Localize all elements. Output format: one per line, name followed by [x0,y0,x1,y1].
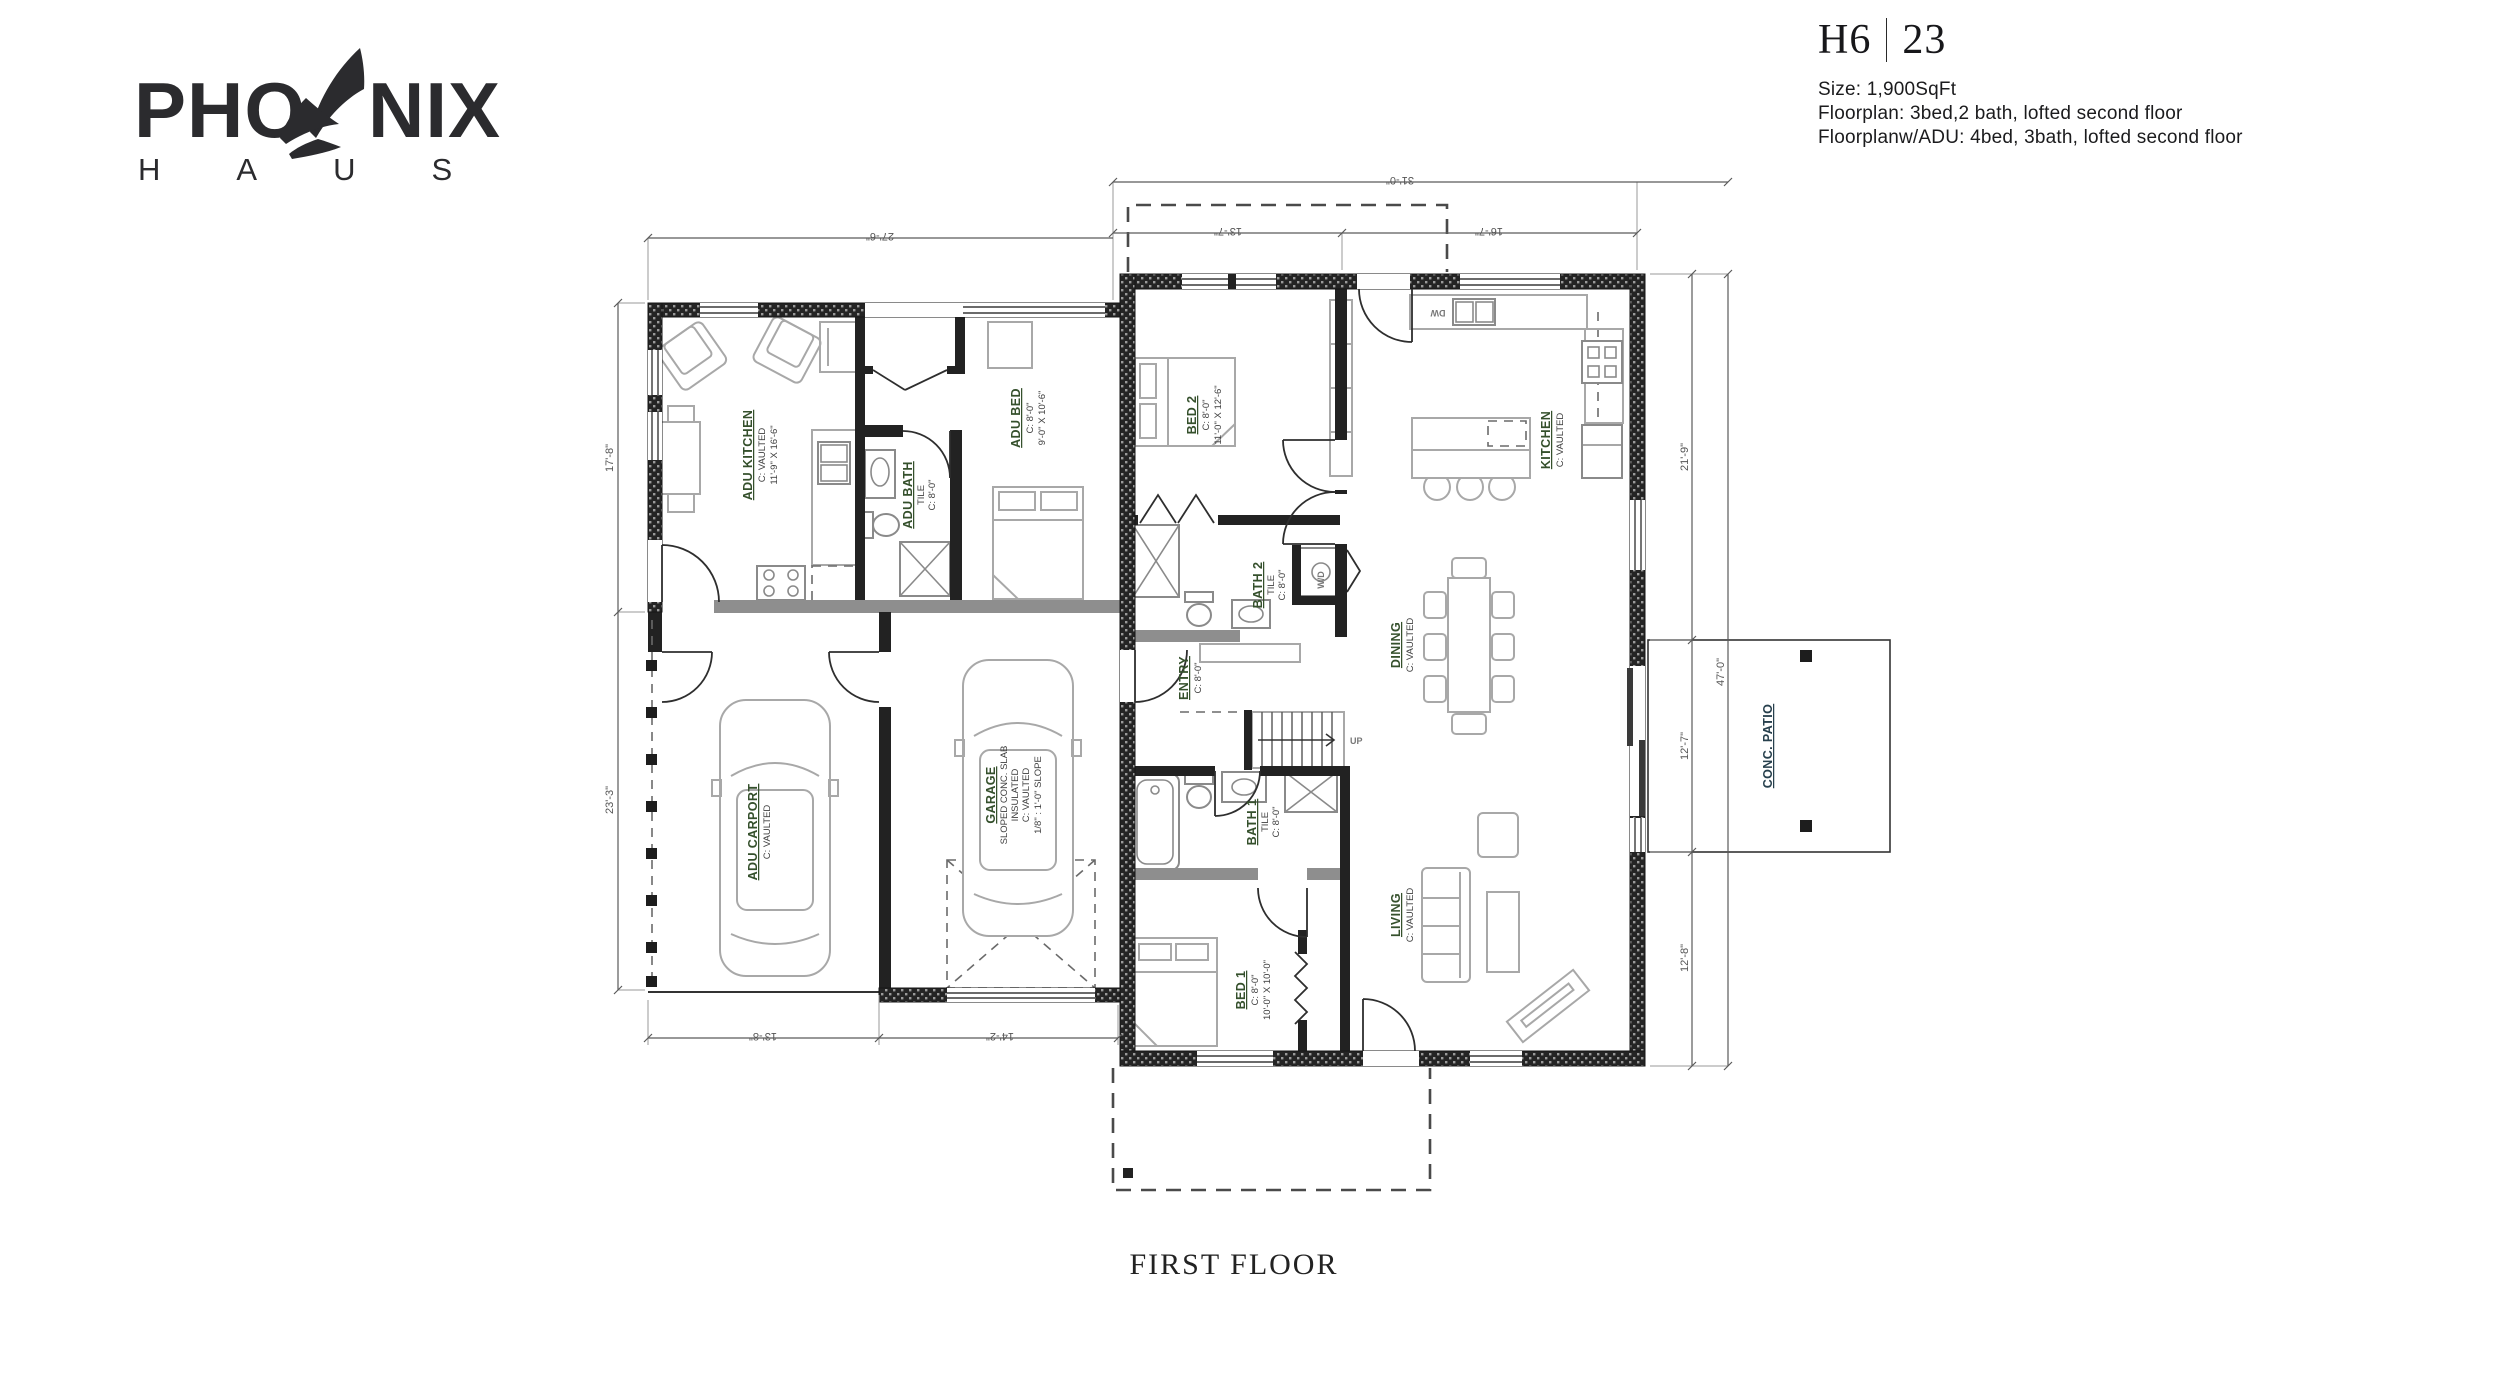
range-icon [757,566,805,600]
kitchen-sink-icon [818,442,850,484]
sliding-door-panel [1627,668,1633,746]
dim-left-adu: 17'-8" [604,444,616,472]
dim-right-total: 47'-0" [1715,658,1727,686]
svg-text:BATH 2: BATH 2 [1251,562,1265,609]
svg-text:10'-0" X 10'-0": 10'-0" X 10'-0" [1262,960,1273,1020]
dim-top-kitchen: 16'-7" [1475,225,1503,237]
label-wd: W/D [1316,571,1326,589]
rear-porch-roofline [1113,1068,1430,1190]
svg-text:C: VAULTED: C: VAULTED [1405,888,1416,943]
svg-text:C: 8'-0": C: 8'-0" [1193,662,1204,693]
svg-text:ADU CARPORT: ADU CARPORT [746,784,760,881]
dim-bottom-carport: 13'-8" [749,1030,777,1042]
porch-post [1123,1168,1133,1178]
car-icon [712,700,838,976]
svg-text:1/8" : 1'-0" SLOPE: 1/8" : 1'-0" SLOPE [1033,756,1044,834]
dim-left-carport: 23'-3" [604,786,616,814]
shower-icon [1133,525,1179,597]
refrigerator-icon [1582,425,1622,478]
svg-text:BATH 1: BATH 1 [1245,799,1259,846]
dim-top-bed2: 13'-7" [1214,225,1242,237]
floor-title: FIRST FLOOR [1034,1248,1434,1282]
patio-post [1800,820,1812,832]
label-living: LIVING C: VAULTED [1389,888,1416,943]
dim-right-patio: 12'-7" [1679,732,1691,760]
dim-right-lower: 12'-8" [1679,944,1691,972]
svg-text:TILE: TILE [1266,575,1277,595]
adu-bed-icon [993,487,1083,599]
garage-side-door [829,652,879,702]
svg-text:SLOPED CONC. SLAB: SLOPED CONC. SLAB [999,746,1010,845]
floorplan-drawing: ADU KITCHEN C: VAULTED 11'-9" X 16'-6" A… [0,0,2500,1398]
svg-text:ENTRY: ENTRY [1177,656,1191,700]
dining-table [1448,578,1490,712]
svg-text:CONC. PATIO: CONC. PATIO [1761,704,1775,789]
shower-icon [1285,772,1337,812]
label-dining: DINING C: VAULTED [1389,618,1416,673]
bathtub-icon [1131,774,1179,870]
sliding-door-panel [1639,740,1645,816]
svg-text:ADU BATH: ADU BATH [901,461,915,529]
svg-text:9'-0" X 10'-6": 9'-0" X 10'-6" [1037,391,1048,446]
svg-text:11'-0" X 12'-6": 11'-0" X 12'-6" [1213,385,1224,444]
svg-text:C: VAULTED: C: VAULTED [762,805,773,860]
label-conc-patio: CONC. PATIO [1761,704,1775,789]
bed1-bed-icon [1133,938,1217,1046]
svg-text:DINING: DINING [1389,622,1403,668]
dim-bottom-garage: 14'-2" [986,1030,1014,1042]
svg-text:BED 2: BED 2 [1185,396,1199,435]
svg-text:C: 8'-0": C: 8'-0" [1271,806,1282,837]
svg-text:C: VAULTED: C: VAULTED [1555,413,1566,468]
svg-text:TILE: TILE [1260,812,1271,832]
svg-text:ADU KITCHEN: ADU KITCHEN [741,410,755,501]
svg-text:GARAGE: GARAGE [984,766,998,823]
kitchen-sink-icon [1453,299,1495,325]
svg-text:BED 1: BED 1 [1234,971,1248,1010]
toilet-icon [1185,592,1213,626]
svg-text:TILE: TILE [916,485,927,505]
label-up: UP [1350,736,1363,746]
patio-post [1800,650,1812,662]
adu-carport-door [662,652,712,702]
svg-text:C: VAULTED: C: VAULTED [757,428,768,483]
svg-text:11'-9" X 16'-6": 11'-9" X 16'-6" [769,425,780,484]
svg-text:INSULATED: INSULATED [1010,769,1021,822]
svg-text:C: VAULTED: C: VAULTED [1405,618,1416,673]
kitchen-island [1412,418,1530,500]
front-porch-roofline [1128,205,1447,272]
range-icon [1582,341,1622,383]
svg-text:C: 8'-0": C: 8'-0" [927,479,938,510]
sofa-icon [1422,868,1470,982]
svg-text:C: 8'-0": C: 8'-0" [1250,974,1261,1005]
svg-text:C: 8'-0": C: 8'-0" [1277,569,1288,600]
dim-top-adu: 27'-6" [866,230,894,242]
toilet-icon [864,512,899,538]
svg-text:C: 8'-0": C: 8'-0" [1025,402,1036,433]
carport-posts [646,660,657,987]
svg-text:ADU BED: ADU BED [1009,388,1023,448]
floorplan-sheet: PHO NIX HAUS H6 23 Size: 1,900SqFt Floor… [0,0,2500,1398]
toilet-icon [1185,774,1213,808]
label-kitchen: KITCHEN C: VAULTED [1539,411,1566,469]
svg-text:C: VAULTED: C: VAULTED [1021,768,1032,823]
shower-icon [900,542,950,596]
label-dw: DW [1430,308,1445,318]
dim-right-upper: 21'-9" [1679,443,1691,471]
svg-text:C: 8'-0": C: 8'-0" [1201,399,1212,430]
dim-top-main: 31'-0" [1386,174,1414,186]
svg-text:LIVING: LIVING [1389,893,1403,937]
svg-text:KITCHEN: KITCHEN [1539,411,1553,469]
